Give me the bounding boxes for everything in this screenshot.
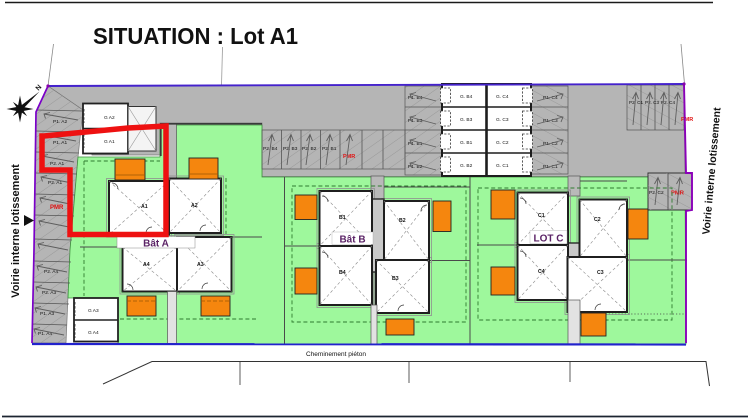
svg-text:G. C2: G. C2	[496, 140, 509, 146]
svg-text:G. C1: G. C1	[496, 163, 509, 169]
svg-text:G A2: G A2	[104, 115, 115, 121]
svg-text:C2: C2	[594, 217, 601, 223]
svg-text:Bât B: Bât B	[339, 235, 365, 246]
svg-text:PMR: PMR	[343, 154, 355, 160]
svg-text:G. B3: G. B3	[460, 117, 473, 123]
svg-text:G A1: G A1	[104, 139, 115, 145]
svg-text:C4: C4	[538, 269, 545, 275]
svg-text:B4: B4	[339, 270, 346, 276]
svg-text:Bât A: Bât A	[143, 239, 169, 250]
svg-text:G. C4: G. C4	[496, 94, 509, 100]
svg-text:B1: B1	[339, 215, 346, 221]
svg-text:C1: C1	[538, 213, 545, 219]
svg-text:Cheminement piéton: Cheminement piéton	[306, 351, 366, 358]
svg-text:P2. C1: P2. C1	[629, 100, 643, 105]
svg-text:LOT C: LOT C	[534, 234, 564, 245]
svg-text:G. B1: G. B1	[460, 140, 473, 146]
svg-text:P2. B1: P2. B1	[322, 146, 337, 152]
svg-text:B2: B2	[399, 218, 406, 224]
svg-text:Voirie interne lotissement: Voirie interne lotissement	[10, 164, 22, 298]
svg-text:B3: B3	[392, 276, 399, 282]
svg-text:G. C3: G. C3	[496, 117, 509, 123]
svg-text:Voirie interne lotissement: Voirie interne lotissement	[700, 107, 723, 236]
svg-text:A4: A4	[143, 262, 150, 268]
svg-text:P2. B3: P2. B3	[283, 146, 298, 152]
svg-text:P2. C3: P2. C3	[645, 100, 659, 105]
svg-text:N: N	[35, 84, 44, 92]
svg-text:PMR: PMR	[681, 117, 693, 123]
svg-text:P1. A1: P1. A1	[53, 140, 67, 146]
svg-text:P2. B2: P2. B2	[302, 146, 317, 152]
svg-text:G. B2: G. B2	[460, 163, 473, 169]
svg-text:P2. A1: P2. A1	[50, 161, 64, 167]
svg-text:P1. A2: P1. A2	[53, 119, 67, 125]
svg-text:A3: A3	[197, 262, 204, 268]
svg-text:G. B4: G. B4	[460, 94, 473, 100]
svg-text:G A3: G A3	[88, 308, 99, 314]
svg-text:PMR: PMR	[50, 205, 64, 211]
svg-text:G A4: G A4	[88, 330, 99, 336]
svg-text:SITUATION : Lot A1: SITUATION : Lot A1	[93, 23, 298, 49]
svg-text:C3: C3	[597, 270, 604, 276]
svg-text:A2: A2	[191, 203, 198, 209]
svg-text:A1: A1	[141, 204, 148, 210]
